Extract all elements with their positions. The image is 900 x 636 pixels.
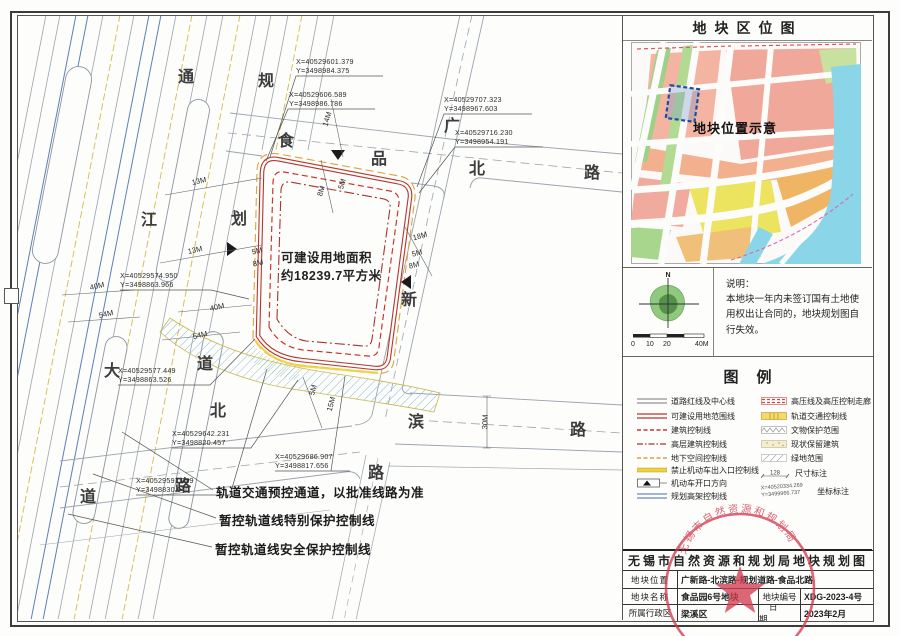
legend-item: 建筑控制线 xyxy=(637,424,711,436)
legend-label: 高压线及高压控制走廊 xyxy=(791,396,871,407)
coordinate-example-text: X=40520334.269 Y=3499966.737 xyxy=(761,483,804,499)
legend-label: 尺寸标注 xyxy=(795,468,827,479)
legend-label: 机动车开口方向 xyxy=(671,478,727,489)
legend-swatch-dimension-example: 128 xyxy=(761,468,791,479)
legend-item: 文物保护范围 xyxy=(761,424,839,436)
field-location-value: 广新路-北滨路-规划道路-食品北路 xyxy=(678,571,873,588)
road-label-char: 道 xyxy=(197,357,213,373)
field-district-label: 所属行政区 xyxy=(623,605,678,621)
remarks-heading: 说明： xyxy=(726,277,863,292)
road-label-char: 滨 xyxy=(408,415,424,431)
field-name-value: 食品园6号地块 xyxy=(678,589,759,604)
field-date-value: 2023年2月 xyxy=(801,605,873,621)
legend-label: 轨道交通控制线 xyxy=(791,411,847,422)
legend-item: 规划高架控制线 xyxy=(637,490,727,502)
legend-item: 机动车开口方向 xyxy=(637,477,727,489)
coordinate-callout: X=40529707.323 Y=3498967.603 xyxy=(444,95,502,114)
coordinate-callout: X=40529577.449 Y=3498863.526 xyxy=(118,366,176,385)
legend-label: 现状保留建筑 xyxy=(791,439,839,450)
legend-swatch-highrise-control xyxy=(637,439,667,449)
coordinate-callout: X=40529686.907 Y=3498817.656 xyxy=(275,452,333,471)
legend-label: 坐标标注 xyxy=(817,486,849,497)
remarks-body: 本地块一年内未签订国有土地使用权出让合同的，地块规划图自行失效。 xyxy=(726,292,863,338)
legend-swatch-elevated-control xyxy=(637,491,667,501)
legend-swatch-rail-control xyxy=(761,411,787,421)
legend-swatch-underground-control xyxy=(637,453,667,463)
legend-swatch-hv-corridor xyxy=(761,396,787,406)
legend-item: 绿地范围 xyxy=(761,452,823,464)
field-location-label: 地块位置 xyxy=(623,571,678,588)
legend-item: X=40520334.269 Y=3499966.737 坐标标注 xyxy=(761,485,849,497)
legend-item: 可建设用地范围线 xyxy=(637,410,735,422)
legend: 图例 道路红线及中心线 可建设用地范围线 建筑控制线 高层建筑控制线 地下空间控… xyxy=(623,357,872,550)
location-map-label: 地块位置示意 xyxy=(693,118,777,137)
road-label-char: 划 xyxy=(231,212,247,228)
legend-label: 可建设用地范围线 xyxy=(671,411,735,422)
scale-label: 0 xyxy=(631,341,635,348)
road-label-char: 通 xyxy=(178,70,194,86)
scale-label: 40M xyxy=(695,341,709,348)
field-district-value: 梁溪区 xyxy=(678,605,759,621)
legend-swatch-vehicle-opening xyxy=(637,478,667,488)
rail-corridor-note: 轨道交通预控通道，以批准线路为准 xyxy=(216,482,424,501)
legend-swatch-no-vehicle-access xyxy=(637,465,667,475)
coordinate-callout: X=40529601.379 Y=3498984.375 xyxy=(296,57,354,76)
legend-item: 现状保留建筑 xyxy=(761,438,839,450)
planning-sheet: { "map": { "area_label": "可建设用地面积\n约1823… xyxy=(0,0,900,636)
road-label-char: 北 xyxy=(469,162,485,178)
location-map: 地块位置示意 xyxy=(623,41,872,268)
field-number-value: XDG-2023-4号 xyxy=(801,589,873,604)
legend-swatch-road-redline xyxy=(637,396,667,406)
road-label-char: 路 xyxy=(368,466,384,482)
road-label-char: 路 xyxy=(584,166,600,182)
legend-swatch-green-space xyxy=(761,453,787,463)
legend-label: 建筑控制线 xyxy=(671,425,711,436)
legend-item: 128 尺寸标注 xyxy=(761,467,827,479)
legend-swatch-preserved-building xyxy=(761,439,787,449)
buildable-area-label: 可建设用地面积 约18239.7平方米 xyxy=(281,250,382,285)
scale-label: 20 xyxy=(663,341,671,348)
road-label-char: 品 xyxy=(371,152,387,168)
remarks-box: 说明： 本地块一年内未签订国有土地使用权出让合同的，地块规划图自行失效。 xyxy=(714,268,873,357)
road-label-char: 北 xyxy=(210,404,226,420)
field-name-label: 地块名称 xyxy=(623,589,678,604)
dimension-label: 30M xyxy=(480,414,490,429)
plot-marker-rect xyxy=(666,85,699,122)
rail-special-protection-note: 暂控轨道线特别保护控制线 xyxy=(219,510,375,529)
info-panel: 地块区位图 xyxy=(622,15,872,620)
panel-title: 地块区位图 xyxy=(623,15,872,41)
legend-swatch-buildable-line xyxy=(637,411,667,421)
legend-label: 绿地范围 xyxy=(791,453,823,464)
legend-item: 轨道交通控制线 xyxy=(761,410,847,422)
coordinate-callout: X=40529716.230 Y=3498954.191 xyxy=(455,128,513,147)
legend-label: 禁止机动车出入口控制线 xyxy=(671,465,759,476)
legend-item: 高层建筑控制线 xyxy=(637,438,727,450)
vehicle-opening-left-icon xyxy=(227,242,237,256)
coordinate-callout: X=40529597.039 Y=3498830.040 xyxy=(136,476,194,495)
field-number-label: 地块编号 xyxy=(759,589,801,604)
scale-bar xyxy=(623,332,713,340)
title-block: 无锡市自然资源和规划局地块规划图 地块位置 广新路-北滨路-规划道路-食品北路 … xyxy=(623,550,873,620)
legend-item: 禁止机动车出入口控制线 xyxy=(637,464,759,476)
field-date-label: 日期 xyxy=(759,605,801,621)
legend-label: 规划高架控制线 xyxy=(671,491,727,502)
legend-label: 地下空间控制线 xyxy=(671,453,727,464)
road-label-char: 食 xyxy=(278,134,294,150)
rail-safety-protection-note: 暂控轨道线安全保护控制线 xyxy=(215,539,371,558)
vehicle-opening-top-icon xyxy=(331,150,345,160)
rail-corridor-lines xyxy=(0,15,334,620)
north-label: N xyxy=(665,272,670,279)
location-map-graphic xyxy=(631,42,861,264)
dimension-example-text: 128 xyxy=(770,470,781,476)
ramp-capsules xyxy=(30,64,225,530)
scale-label: 10 xyxy=(646,341,654,348)
legend-label: 高层建筑控制线 xyxy=(671,439,727,450)
coordinate-callout: X=40529574.950 Y=3498863.966 xyxy=(120,271,178,290)
legend-item: 地下空间控制线 xyxy=(637,452,727,464)
road-label-char: 江 xyxy=(141,213,157,229)
road-label-char: 道 xyxy=(80,490,96,506)
legend-title: 图例 xyxy=(623,366,872,387)
road-label-char: 规 xyxy=(258,74,274,90)
legend-label: 道路红线及中心线 xyxy=(671,396,735,407)
north-arrow-graphic: N xyxy=(623,268,713,334)
legend-swatch-building-control xyxy=(637,425,667,435)
road-label-char: 新 xyxy=(401,293,417,309)
compass-box: N 0 10 20 40M xyxy=(623,268,714,357)
legend-swatch-relic-protection xyxy=(761,425,787,435)
coordinate-callout: X=40529606.589 Y=3498986.786 xyxy=(289,90,347,109)
drawing-title: 无锡市自然资源和规划局地块规划图 xyxy=(623,551,873,571)
road-label-char: 路 xyxy=(570,423,586,439)
coordinate-callout: X=40529642.231 Y=3498820.457 xyxy=(172,429,230,448)
legend-label: 文物保护范围 xyxy=(791,425,839,436)
legend-item: 道路红线及中心线 xyxy=(637,395,735,407)
legend-item: 高压线及高压控制走廊 xyxy=(761,395,871,407)
